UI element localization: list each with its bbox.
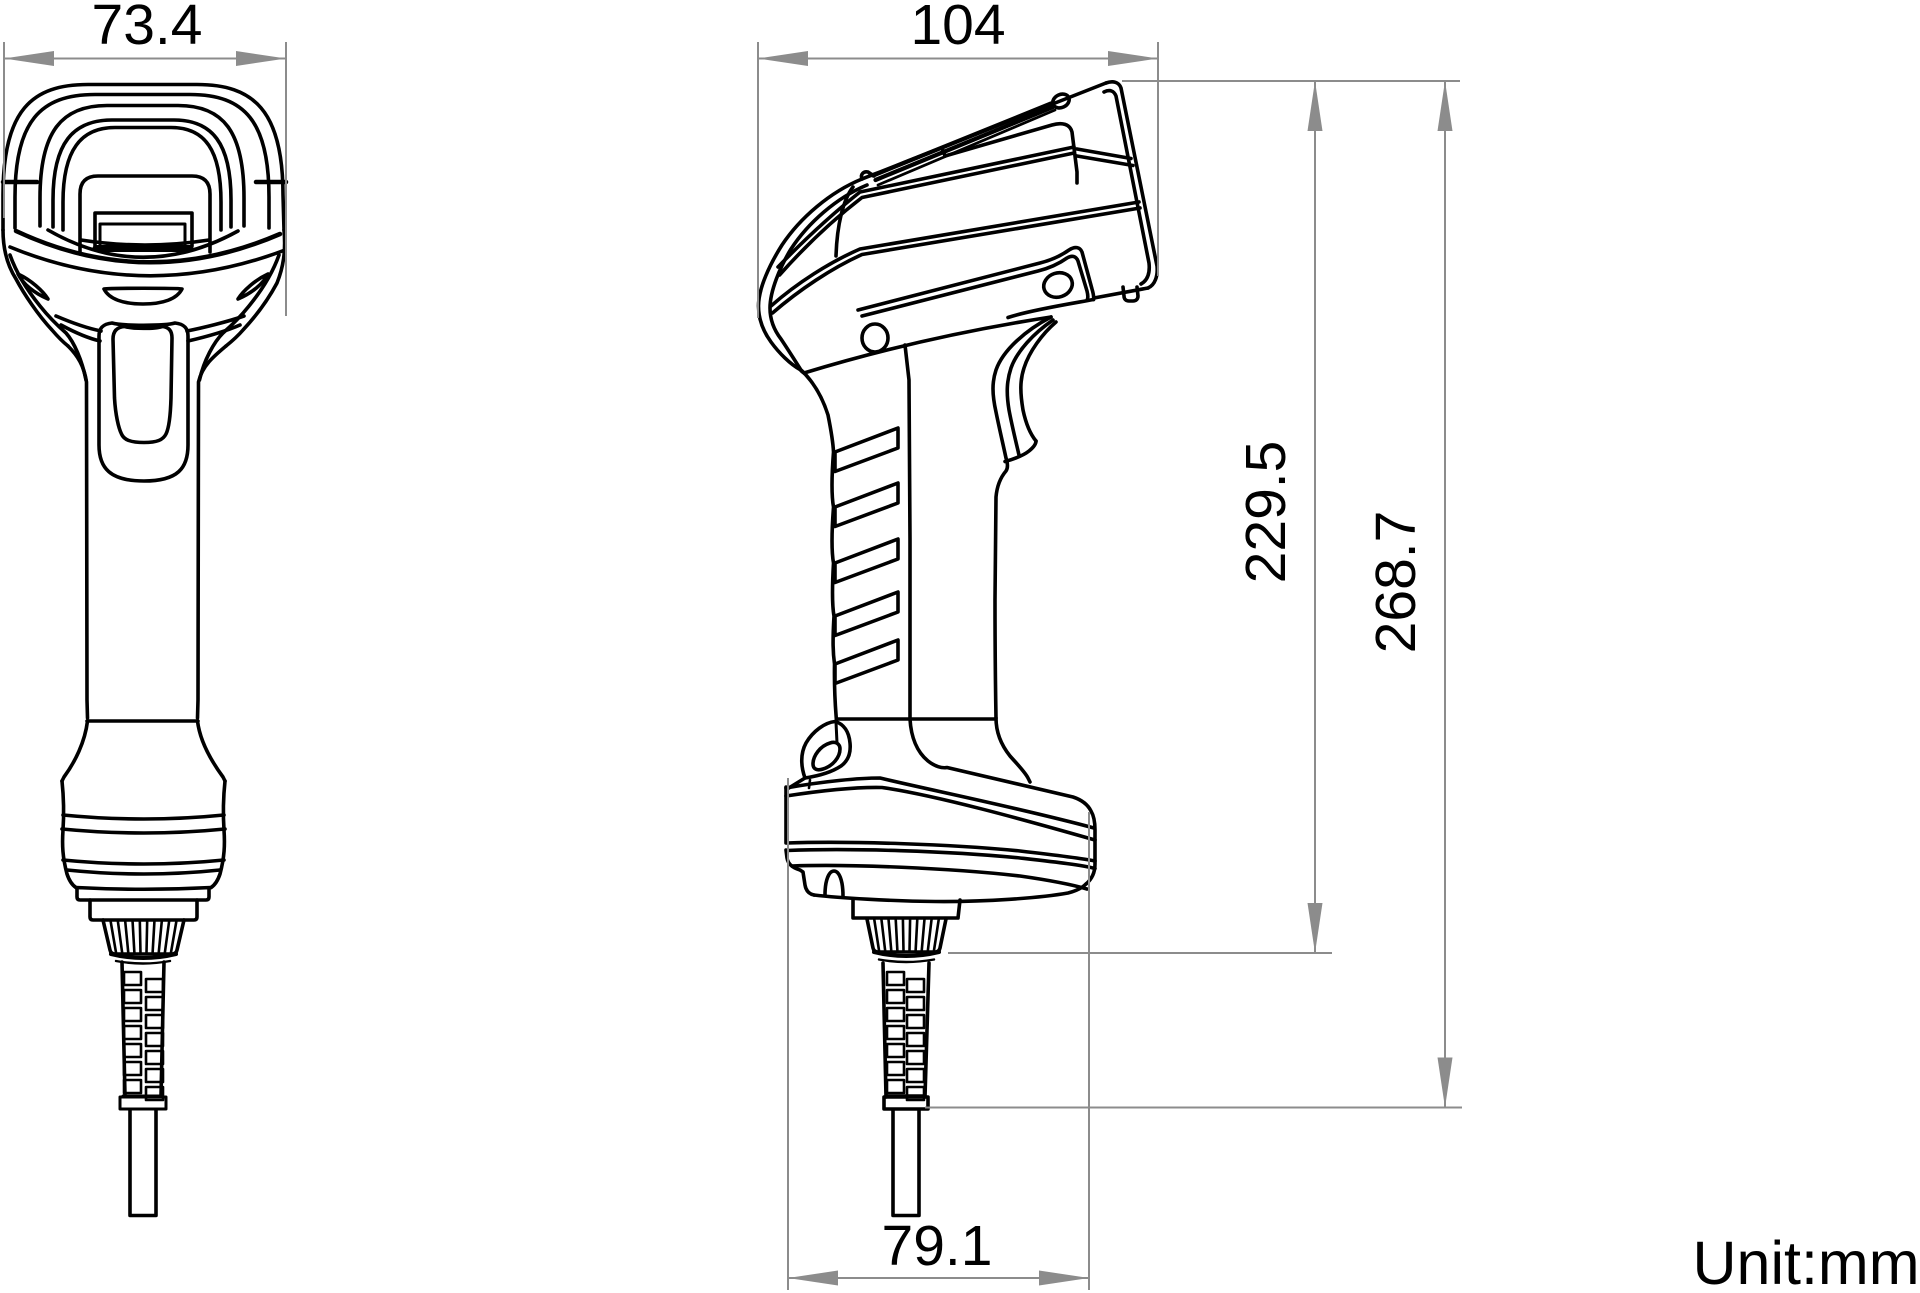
svg-text:229.5: 229.5 bbox=[1234, 441, 1298, 584]
svg-text:73.4: 73.4 bbox=[92, 0, 203, 57]
svg-text:268.7: 268.7 bbox=[1364, 511, 1428, 654]
svg-text:104: 104 bbox=[910, 0, 1005, 57]
svg-text:Unit:mm: Unit:mm bbox=[1692, 1229, 1919, 1293]
svg-text:79.1: 79.1 bbox=[882, 1214, 993, 1278]
